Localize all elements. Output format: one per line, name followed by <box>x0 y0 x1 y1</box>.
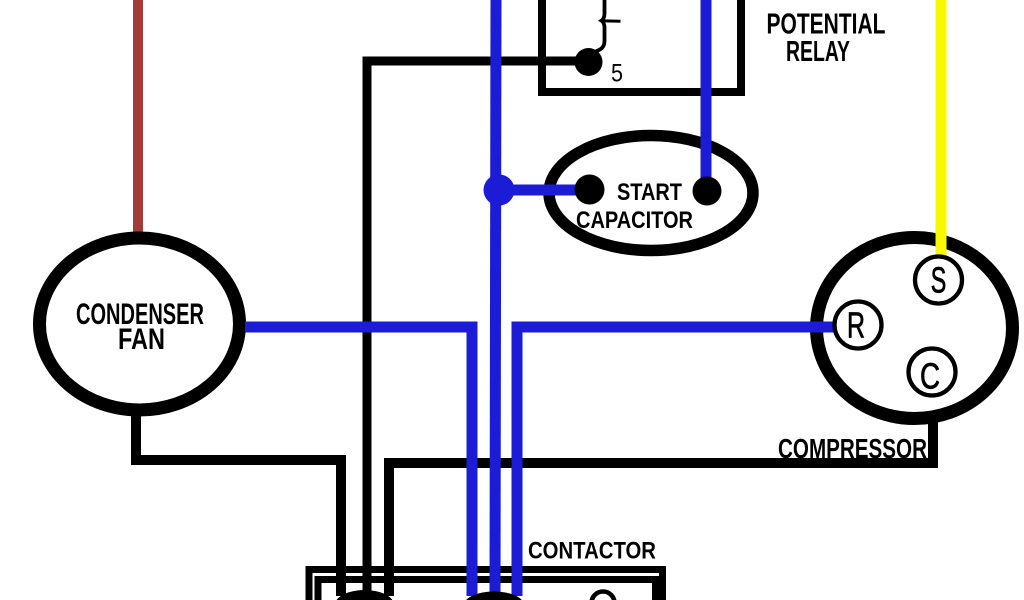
svg-text:5: 5 <box>611 60 623 88</box>
svg-text:RELAY: RELAY <box>786 36 850 68</box>
svg-text:START: START <box>617 179 682 206</box>
svg-text:COMPRESSOR: COMPRESSOR <box>778 433 927 464</box>
svg-text:CAPACITOR: CAPACITOR <box>576 207 693 234</box>
svg-text:R: R <box>847 305 865 346</box>
svg-text:CONTACTOR: CONTACTOR <box>528 538 656 565</box>
svg-text:S: S <box>931 260 947 301</box>
svg-text:FAN: FAN <box>118 323 165 356</box>
svg-text:C: C <box>920 356 940 397</box>
